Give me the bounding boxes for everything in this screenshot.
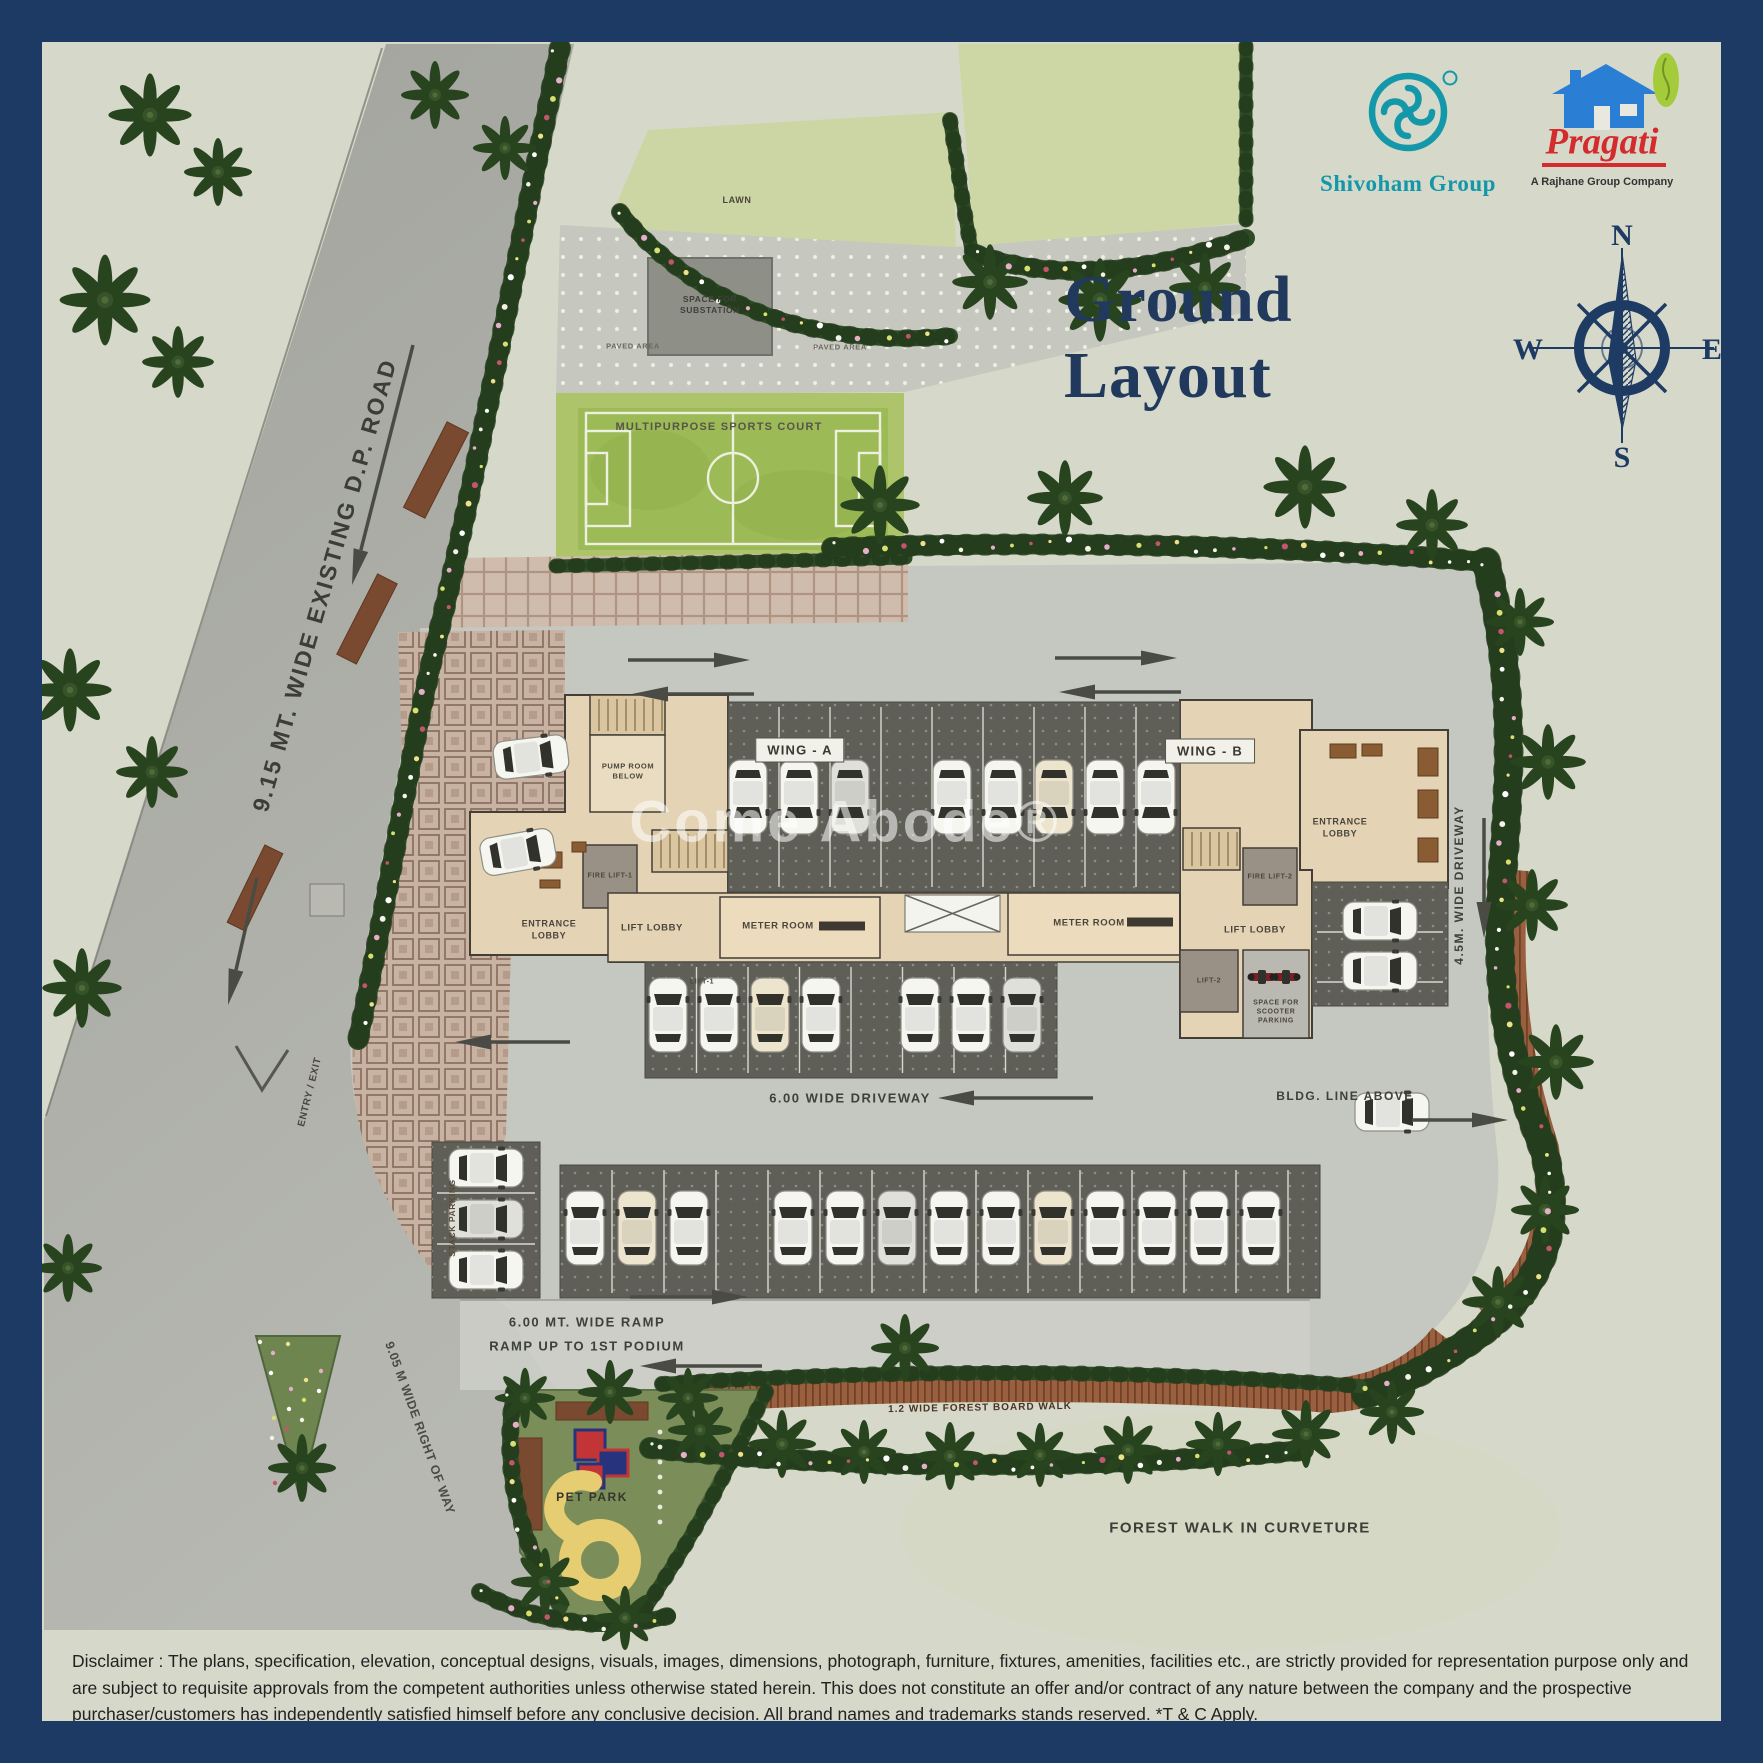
flower-dot [459, 530, 465, 536]
car-icon [1343, 950, 1417, 993]
ramp-label-2: RAMP UP TO 1ST PODIUM [489, 1339, 684, 1354]
ground-layout-plan: Ground Layout Come Abode® Shivoham Group… [0, 0, 1763, 1763]
flower-dot [1410, 550, 1414, 554]
flower-dot [363, 1021, 367, 1025]
flower-dot [991, 546, 995, 550]
flower-dot [1480, 563, 1483, 566]
flower-dot [1029, 542, 1033, 546]
flower-dot [1539, 1124, 1543, 1128]
flower-dot [1548, 1191, 1551, 1194]
flower-dot [944, 339, 948, 343]
flower-dot [555, 1596, 558, 1599]
flower-dot [368, 954, 373, 959]
fire-lift-2-label: FIRE LIFT-2 [1247, 874, 1292, 881]
flower-dot [925, 331, 930, 336]
flower-dot [515, 1527, 520, 1532]
flower-dot [1104, 544, 1110, 550]
palm-tree-icon [1518, 1024, 1594, 1100]
trail-dot [658, 1475, 663, 1480]
flower-dot [1339, 552, 1344, 557]
flower-dot [1156, 541, 1161, 546]
trail-dot [658, 1505, 663, 1510]
wing-b-label: WING - B [1165, 739, 1255, 764]
car-icon [1240, 1191, 1283, 1265]
car-icon [1032, 1191, 1075, 1265]
flower-dot [1320, 553, 1326, 559]
flower-dot [502, 304, 508, 310]
palm-tree-icon [1027, 460, 1103, 536]
pump-room-label: PUMP ROOM BELOW [597, 761, 659, 781]
flower-dot [491, 379, 496, 384]
flower-dot [472, 482, 478, 488]
flower-dot [1189, 251, 1192, 254]
flower-dot [1405, 1374, 1411, 1380]
lift-2-label: LIFT-2 [1197, 978, 1221, 985]
flower-dot [1545, 1153, 1549, 1157]
flower-dot [427, 672, 430, 675]
palm-tree-icon [916, 1422, 984, 1490]
car-icon [824, 1191, 867, 1265]
flower-dot [855, 336, 861, 342]
flower-dot [510, 1479, 515, 1484]
flower-dot [1502, 791, 1508, 797]
flower-dot [920, 541, 925, 546]
car-icon [698, 978, 741, 1052]
car-icon [1135, 760, 1178, 834]
flower-dot [385, 897, 391, 903]
flower-dot [1541, 1227, 1547, 1233]
flower-dot [1494, 966, 1498, 970]
flower-dot [503, 341, 508, 346]
palm-tree-icon [658, 1368, 718, 1428]
flower-dot [1448, 560, 1452, 564]
ramp-label-1: 6.00 MT. WIDE RAMP [509, 1315, 665, 1330]
flower-dot [887, 335, 892, 340]
flower-dot [362, 983, 367, 988]
flower-dot [1358, 551, 1363, 556]
flower-dot [641, 235, 647, 241]
palm-tree-icon [268, 1434, 336, 1502]
trail-dot [658, 1460, 663, 1465]
flower-dot [1497, 610, 1503, 616]
flower-dot [1213, 548, 1217, 552]
flower-dot [681, 1452, 687, 1458]
flower-dot [1246, 1458, 1250, 1462]
flower-dot [302, 1398, 306, 1402]
car-icon [772, 1191, 815, 1265]
flower-dot [1284, 1451, 1287, 1454]
flower-dot [300, 1418, 304, 1422]
car-icon [668, 1191, 711, 1265]
flower-dot [866, 1458, 869, 1461]
flower-dot [582, 1617, 587, 1622]
flower-dot [447, 605, 451, 609]
car-icon [928, 1191, 971, 1265]
flower-dot [1194, 550, 1198, 554]
forest-walk-label: FOREST WALK IN CURVETURE [1109, 1520, 1371, 1537]
lift-1-label: LIFT-1 [690, 979, 714, 986]
palm-tree-icon [1510, 724, 1586, 800]
flower-dot [906, 334, 911, 339]
flower-dot [1377, 550, 1382, 555]
flower-dot [447, 568, 452, 573]
flower-dot [1521, 1106, 1526, 1111]
flower-dot [1496, 840, 1502, 846]
flower-dot [1467, 560, 1470, 563]
flower-dot [1030, 1465, 1034, 1469]
flower-dot [453, 549, 458, 554]
flower-dot [1507, 774, 1510, 777]
flower-dot [1494, 591, 1500, 597]
driveway-main-label: 6.00 WIDE DRIVEWAY [769, 1091, 931, 1106]
flower-dot [617, 212, 620, 215]
flower-dot [550, 96, 556, 102]
flower-dot [883, 1455, 889, 1461]
site-plan-canvas [0, 0, 1763, 1763]
flower-dot [556, 77, 562, 83]
palm-tree-icon [748, 1410, 816, 1478]
flower-dot [738, 1452, 743, 1457]
flower-dot [1224, 244, 1230, 250]
flower-dot [532, 152, 537, 157]
palm-tree-icon [184, 138, 252, 206]
flower-dot [836, 335, 842, 341]
sports-court-label: MULTIPURPOSE SPORTS COURT [615, 421, 822, 433]
palm-tree-icon [1486, 588, 1554, 656]
substation-label: SPACE FOR SUBSTATION [660, 294, 760, 316]
flower-dot [1499, 821, 1505, 827]
flower-dot [1447, 1359, 1450, 1362]
stairs [590, 695, 665, 735]
flower-dot [526, 1610, 532, 1616]
shivoham-name: Shivoham Group [1320, 171, 1496, 197]
car-icon [449, 1249, 523, 1292]
flower-dot [440, 635, 444, 639]
car-icon [1136, 1191, 1179, 1265]
flower-dot [959, 548, 964, 553]
flower-dot [419, 689, 425, 695]
flower-dot [1506, 859, 1511, 864]
car-icon [980, 1191, 1023, 1265]
trail-dot [658, 1445, 663, 1450]
flower-dot [285, 1427, 289, 1431]
flower-dot [1546, 1246, 1552, 1252]
flower-dot [533, 201, 537, 205]
flower-dot [513, 1422, 519, 1428]
flower-dot [902, 1465, 908, 1471]
flower-dot [1429, 561, 1433, 565]
entrance-lobby-b-label: ENTRANCE LOBBY [1300, 816, 1380, 839]
flower-dot [440, 586, 445, 591]
flower-dot [1050, 1463, 1054, 1467]
palm-tree-icon [473, 116, 537, 180]
palm-tree-icon [1272, 1400, 1340, 1468]
flower-dot [800, 321, 803, 324]
flower-dot [1138, 1463, 1144, 1469]
flower-dot [1157, 1460, 1162, 1465]
flower-dot [1500, 697, 1505, 702]
car-icon [616, 1191, 659, 1265]
flower-dot [1362, 1386, 1367, 1391]
flower-dot [763, 312, 767, 316]
flower-dot [369, 1002, 374, 1007]
palm-tree-icon [1094, 1416, 1162, 1484]
car-icon [950, 978, 993, 1052]
flower-dot [973, 1460, 978, 1465]
flower-dot [515, 257, 518, 260]
flower-dot [940, 539, 945, 544]
compass-west-label: W [1513, 333, 1543, 367]
flower-dot [1010, 544, 1014, 548]
palm-tree-icon [108, 73, 191, 156]
flower-dot [776, 1462, 781, 1467]
flower-dot [270, 1436, 274, 1440]
entrance-lobby-a-label: ENTRANCE LOBBY [510, 918, 588, 941]
flower-dot [650, 1442, 653, 1445]
flower-dot [1491, 1317, 1495, 1321]
flower-dot [1011, 1468, 1015, 1472]
palm-tree-icon [495, 1368, 555, 1428]
flower-dot [976, 250, 979, 253]
flower-dot [1301, 542, 1307, 548]
palm-tree-icon [142, 326, 214, 398]
flower-dot [414, 756, 419, 761]
flower-dot [1473, 1328, 1477, 1332]
car-icon [1188, 1191, 1231, 1265]
car-icon [449, 1147, 523, 1190]
flower-dot [1547, 1172, 1551, 1176]
flower-dot [1505, 1003, 1511, 1009]
flower-dot [385, 861, 389, 865]
bldg-line-label: BLDG. LINE ABOVE [1276, 1089, 1414, 1103]
flower-dot [1497, 928, 1501, 932]
car-icon [1084, 1191, 1127, 1265]
compass-south-label: S [1614, 441, 1631, 475]
palm-tree-icon [952, 244, 1028, 320]
flower-dot [271, 1351, 275, 1355]
meter-room-a-label: METER ROOM [742, 921, 813, 932]
flower-dot [719, 1452, 725, 1458]
flower-dot [547, 1580, 551, 1584]
car-icon [876, 1191, 919, 1265]
pragati-tagline: A Rajhane Group Company [1531, 176, 1674, 188]
stack-parking-label: STACK PARKING [447, 1179, 457, 1256]
paved-area-label: PAVED AREA [813, 343, 867, 352]
flower-dot [538, 134, 543, 139]
flower-dot [808, 1461, 812, 1465]
flower-dot [319, 1369, 323, 1373]
car-icon [1343, 900, 1417, 943]
lawn-label: LAWN [723, 195, 752, 205]
pragati-underline [1542, 163, 1666, 167]
flower-dot [544, 1614, 550, 1620]
palm-tree-icon [34, 1234, 102, 1302]
flower-dot [526, 182, 531, 187]
palm-tree-icon [1263, 445, 1346, 528]
flower-dot [1085, 546, 1091, 552]
flower-dot [817, 322, 823, 328]
pet-park-label: PET PARK [556, 1490, 628, 1504]
flower-dot [882, 545, 888, 551]
flower-dot [1384, 1381, 1390, 1387]
car-icon [749, 978, 792, 1052]
flower-dot [1523, 1290, 1528, 1295]
flower-dot [1265, 1455, 1269, 1459]
flower-dot [258, 1340, 262, 1344]
flower-dot [272, 1416, 276, 1420]
wing-a-label: WING - A [755, 738, 844, 763]
flower-dot [510, 1441, 516, 1447]
flower-dot [508, 1605, 514, 1611]
flower-dot [497, 360, 502, 365]
flower-dot [700, 1452, 706, 1458]
flower-dot [1282, 543, 1288, 549]
flower-dot [408, 775, 413, 780]
flower-dot [1500, 667, 1505, 672]
flower-dot [1048, 540, 1051, 543]
flower-dot [1175, 540, 1180, 545]
fire-lift-1-label: FIRE LIFT-1 [587, 873, 632, 880]
flower-dot [1006, 263, 1012, 269]
lawn-area-northeast [958, 44, 1246, 254]
disclaimer-text: Disclaimer : The plans, specification, e… [72, 1648, 1704, 1728]
flower-dot [699, 279, 704, 284]
flower-dot [1545, 1208, 1551, 1214]
flower-dot [480, 1589, 483, 1592]
paved-area-label: PAVED AREA [606, 342, 660, 351]
flower-dot [1024, 266, 1030, 272]
flower-dot [273, 1481, 277, 1485]
flower-dot [954, 1462, 959, 1467]
utility-box [310, 884, 344, 916]
trail-dot [658, 1520, 663, 1525]
flower-dot [1227, 1451, 1231, 1455]
flower-dot [269, 1371, 273, 1375]
meter-room-b-label: METER ROOM [1053, 918, 1124, 929]
palm-tree-icon [1186, 1412, 1250, 1476]
lift-lobby-b-label: LIFT LOBBY [1224, 925, 1286, 936]
flower-dot [505, 1393, 508, 1396]
flower-dot [287, 1407, 291, 1411]
flower-dot [304, 1378, 308, 1382]
car-icon [800, 978, 843, 1052]
flower-dot [433, 653, 437, 657]
car-icon [899, 978, 942, 1052]
palm-tree-icon [28, 648, 111, 731]
driveway-side-label: 4.5M. WIDE DRIVEWAY [1452, 805, 1466, 964]
flower-dot [1509, 754, 1513, 758]
meter-bar [819, 922, 865, 931]
flower-dot [1516, 1088, 1521, 1093]
car-icon [564, 1191, 607, 1265]
trail-dot [658, 1490, 663, 1495]
compass-north-label: N [1611, 219, 1633, 253]
palm-tree-icon [1511, 1176, 1579, 1244]
flower-dot [1176, 1457, 1181, 1462]
flower-dot [1066, 536, 1072, 542]
flower-dot [1206, 242, 1212, 248]
flower-dot [668, 259, 674, 265]
palm-tree-icon [871, 1314, 939, 1382]
flower-dot [1043, 267, 1049, 273]
car-icon [1084, 760, 1127, 834]
flower-dot [1454, 1350, 1458, 1354]
flower-dot [1507, 1022, 1513, 1028]
flower-dot [286, 1342, 290, 1346]
flower-dot [508, 274, 514, 280]
flower-dot [1508, 1304, 1513, 1309]
flower-dot [420, 726, 426, 732]
flower-dot [1136, 543, 1141, 548]
flower-dot [653, 1619, 657, 1623]
flower-dot [1512, 716, 1516, 720]
palm-tree-icon [42, 948, 121, 1027]
flower-dot [509, 1460, 515, 1466]
car-icon [449, 1198, 523, 1241]
flower-dot [480, 465, 483, 468]
palm-tree-icon [1360, 1380, 1424, 1444]
palm-tree-icon [511, 1548, 579, 1616]
flower-dot [1498, 629, 1504, 635]
palm-tree-icon [1462, 1266, 1534, 1338]
flower-dot [563, 1616, 568, 1621]
flower-dot [527, 220, 531, 224]
car-icon [647, 978, 690, 1052]
flower-dot [402, 794, 407, 799]
flower-dot [317, 1389, 321, 1393]
flower-dot [533, 1545, 537, 1549]
flower-dot [634, 1624, 638, 1628]
flower-dot [1499, 648, 1504, 653]
flower-dot [1099, 1457, 1105, 1463]
flower-dot [757, 1451, 762, 1456]
palm-tree-icon [840, 465, 919, 544]
flower-dot [397, 813, 401, 817]
flower-dot [413, 708, 419, 714]
flower-dot [473, 446, 477, 450]
flower-dot [466, 501, 472, 507]
palm-tree-icon [1396, 489, 1468, 561]
palm-tree-icon [578, 1360, 642, 1424]
flower-dot [539, 1563, 543, 1567]
flower-dot [393, 880, 396, 883]
flower-dot [1426, 1366, 1432, 1372]
flower-dot [1506, 985, 1509, 988]
flower-dot [832, 541, 835, 544]
flower-dot [551, 49, 554, 52]
pragati-name: Pragati [1545, 121, 1658, 164]
flower-dot [1510, 735, 1514, 739]
flower-dot [1512, 1070, 1517, 1075]
flower-dot [654, 247, 660, 253]
flower-dot [485, 409, 489, 413]
watermark: Come Abode® [629, 789, 1060, 856]
flower-dot [496, 323, 502, 329]
flower-dot [863, 548, 869, 554]
page-title: Ground Layout [1064, 262, 1424, 414]
flower-dot [1171, 257, 1175, 261]
flower-dot [521, 238, 525, 242]
flower-dot [781, 317, 785, 321]
flower-dot [1502, 879, 1507, 884]
palm-tree-icon [401, 61, 469, 129]
palm-tree-icon [116, 736, 188, 808]
flower-dot [683, 270, 688, 275]
flower-dot [1082, 1461, 1085, 1464]
flower-dot [1232, 547, 1236, 551]
meter-bar [1127, 918, 1173, 927]
flower-dot [1195, 1454, 1200, 1459]
